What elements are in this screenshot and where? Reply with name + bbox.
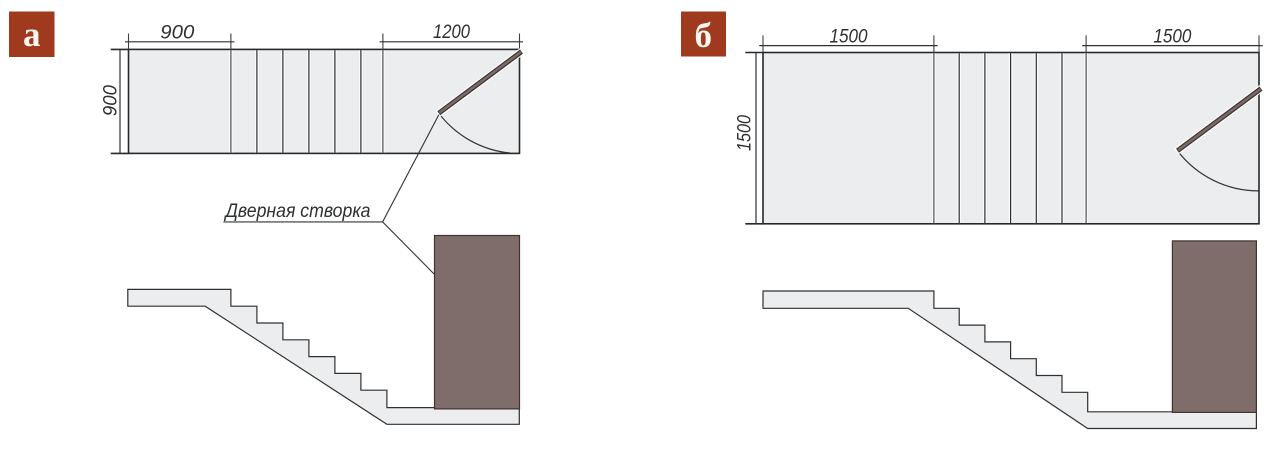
svg-text:1500: 1500	[1153, 26, 1191, 47]
svg-text:Дверная створка: Дверная створка	[224, 201, 371, 222]
svg-text:1500: 1500	[830, 26, 868, 47]
svg-text:900: 900	[101, 85, 122, 116]
svg-text:а: а	[23, 15, 41, 54]
svg-text:б: б	[695, 16, 713, 55]
svg-text:1500: 1500	[735, 115, 756, 151]
svg-text:1200: 1200	[433, 22, 470, 43]
svg-text:900: 900	[160, 23, 194, 44]
